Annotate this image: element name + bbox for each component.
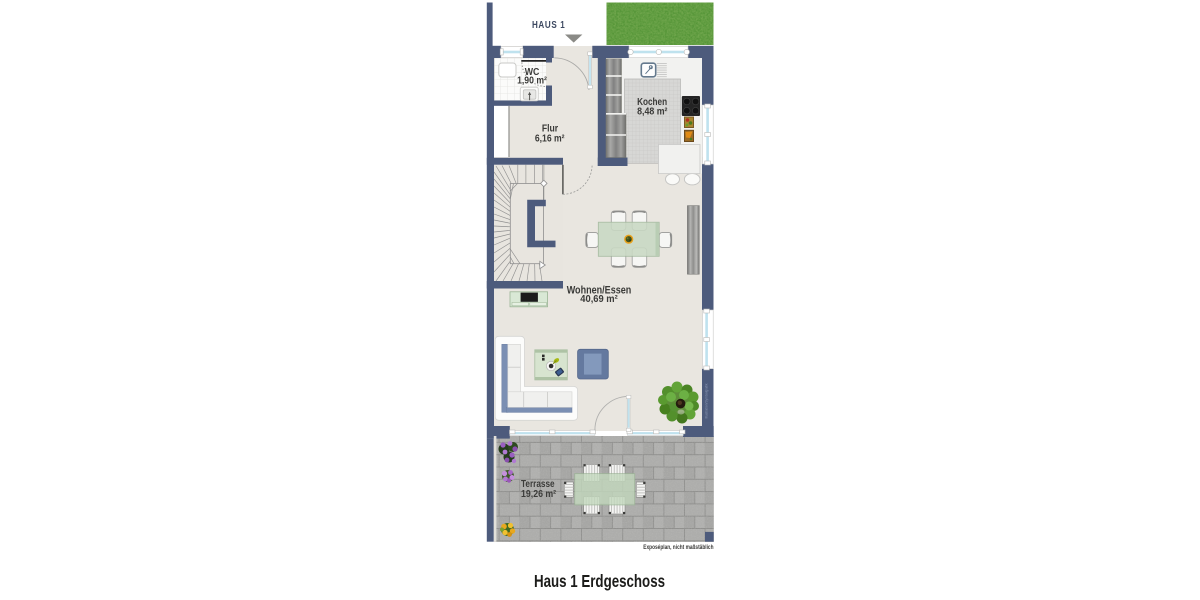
svg-text:40,69 m²: 40,69 m² xyxy=(580,294,618,305)
svg-text:19,26 m²: 19,26 m² xyxy=(521,489,557,500)
svg-text:Illustration/Symbolgrafik: Illustration/Symbolgrafik xyxy=(705,383,709,418)
svg-text:HAUS 1: HAUS 1 xyxy=(532,20,566,31)
svg-text:6,16 m²: 6,16 m² xyxy=(535,133,565,145)
svg-text:Exposéplan, nicht maßstäblich: Exposéplan, nicht maßstäblich xyxy=(643,544,713,551)
svg-text:1,90 m²: 1,90 m² xyxy=(517,75,547,86)
svg-text:8,48 m²: 8,48 m² xyxy=(637,107,668,118)
svg-text:Haus 1 Erdgeschoss: Haus 1 Erdgeschoss xyxy=(534,571,665,591)
svg-text:Terrasse: Terrasse xyxy=(521,478,555,490)
